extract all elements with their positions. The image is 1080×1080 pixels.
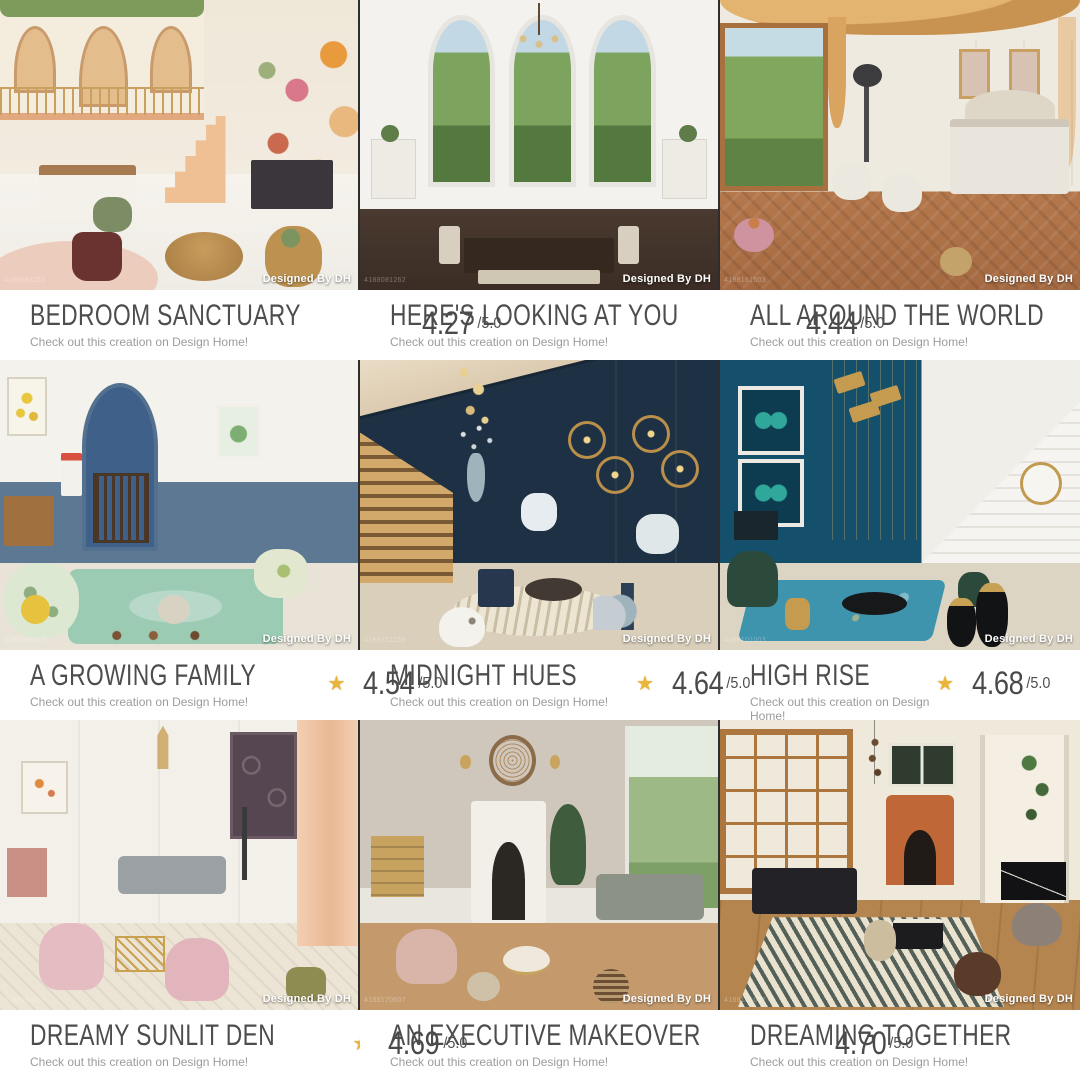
woven-ottoman <box>165 232 244 281</box>
design-card-an-executive-makeover[interactable]: 4188170607 Designed By DH AN EXECUTIVE M… <box>360 720 720 1080</box>
card-caption: DREAMING TOGETHER Check out this creatio… <box>720 1010 1080 1080</box>
design-title: ALL AROUND THE WORLD <box>750 299 1044 332</box>
photo-id-watermark: 4188101002 <box>724 997 766 1004</box>
star-icon: ★ <box>327 671 345 696</box>
design-photo: 4188085163 Designed By DH <box>0 360 360 650</box>
design-title: HIGH RISE <box>750 659 870 692</box>
white-armchair <box>636 514 679 555</box>
brown-leather-pouf <box>954 952 1001 996</box>
gold-coffee-table <box>115 936 166 972</box>
yellow-pillow <box>21 595 50 624</box>
designed-by-overlay: Designed By DH <box>623 273 711 285</box>
wall-sconce <box>550 755 561 770</box>
spotlight-lamp-head <box>853 64 882 87</box>
bed <box>950 119 1069 194</box>
spotlight-lamp-pole <box>864 75 869 162</box>
lattice-window <box>230 732 297 840</box>
design-card-dreaming-together[interactable]: 4188101002 Designed By DH DREAMING TOGET… <box>720 720 1080 1080</box>
green-armchair <box>727 551 777 606</box>
buddha-head-stool <box>864 920 896 961</box>
peach-drapes <box>297 720 358 946</box>
pink-cabinet <box>7 848 46 897</box>
design-title: A GROWING FAMILY <box>30 659 256 692</box>
card-caption: A GROWING FAMILY Check out this creation… <box>0 650 360 720</box>
design-subtitle: Check out this creation on Design Home! <box>750 695 936 723</box>
design-photo: 4188101003 Designed By DH <box>720 360 1080 650</box>
gray-beanbag <box>1012 903 1062 947</box>
design-photo: 4188151159 Designed By DH <box>360 360 720 650</box>
design-photo: 4188081151 Designed By DH <box>0 0 360 290</box>
black-gold-jar <box>947 598 976 647</box>
seed-pendant <box>864 720 886 784</box>
photo-id-watermark: 4188085163 <box>4 637 46 644</box>
designed-by-overlay: Designed By DH <box>263 633 351 645</box>
design-title: DREAMY SUNLIT DEN <box>30 1019 275 1052</box>
designed-by-overlay: Designed By DH <box>263 993 351 1005</box>
design-photo: 4188081262 Designed By DH <box>360 0 720 290</box>
floor-lamp <box>242 807 247 880</box>
wall-sconce <box>460 755 471 770</box>
designed-by-overlay: Designed By DH <box>985 633 1073 645</box>
design-photo: 4188966158 Designed By DH <box>0 720 360 1010</box>
pink-armchair <box>165 938 229 1002</box>
waterfall-art <box>889 743 956 787</box>
gold-candle-ring <box>568 421 606 459</box>
beige-pouf <box>467 972 499 1001</box>
side-cabinet <box>662 139 707 199</box>
rocking-chair <box>832 162 872 200</box>
white-dog <box>439 607 486 648</box>
card-caption: MIDNIGHT HUES Check out this creation on… <box>360 650 720 720</box>
photo-id-watermark: 4188966158 <box>4 997 46 1004</box>
wall-art <box>959 49 990 99</box>
rocking-chair <box>882 174 922 212</box>
gold-candle-ring <box>661 450 699 488</box>
white-armchair <box>521 493 557 531</box>
gray-sofa <box>118 856 225 894</box>
chandelier <box>514 3 564 49</box>
card-caption: BEDROOM SANCTUARY Check out this creatio… <box>0 290 360 360</box>
design-card-bedroom-sanctuary[interactable]: 4188081151 Designed By DH BEDROOM SANCTU… <box>0 0 360 360</box>
photo-id-watermark: 4188081151 <box>4 277 45 284</box>
side-cabinet <box>371 139 416 199</box>
star-icon: ★ <box>636 671 654 696</box>
photo-id-watermark: 4188101003 <box>724 637 766 644</box>
beige-pouf <box>158 595 190 624</box>
design-card-a-growing-family[interactable]: 4188085163 Designed By DH A GROWING FAMI… <box>0 360 360 720</box>
photo-id-watermark: 4188151159 <box>364 637 405 644</box>
card-caption: HIGH RISE Check out this creation on Des… <box>720 650 1080 720</box>
rating-max: /5.0 <box>727 675 751 693</box>
photo-id-watermark: 4188170607 <box>364 997 406 1004</box>
gold-candle-ring <box>596 456 634 494</box>
gold-wall-clock <box>1020 462 1062 506</box>
arched-garden-window <box>589 15 656 187</box>
dining-chair <box>439 226 460 264</box>
green-art <box>216 404 261 459</box>
designed-by-overlay: Designed By DH <box>985 273 1073 285</box>
design-card-heres-looking-at-you[interactable]: 4188081262 Designed By DH HERE'S LOOKING… <box>360 0 720 360</box>
pink-armchair <box>39 923 103 990</box>
rating-max: /5.0 <box>1027 675 1051 693</box>
design-photo: 4188161503 Designed By DH <box>720 0 1080 290</box>
green-pouf <box>93 197 132 232</box>
designed-by-overlay: Designed By DH <box>985 993 1073 1005</box>
daffodil-art <box>7 377 47 436</box>
blush-armchair <box>396 929 457 984</box>
rating-score: 4.64 <box>672 665 723 702</box>
poppy-art <box>21 761 68 814</box>
tall-plant <box>550 804 586 885</box>
white-staircase <box>922 372 1080 563</box>
arched-garden-window <box>428 15 495 187</box>
vine-garland <box>0 0 204 17</box>
photo-id-watermark: 4188161503 <box>724 277 766 284</box>
fireplace-opening <box>904 830 936 885</box>
design-photo: 4188101002 Designed By DH <box>720 720 1080 1010</box>
fireplace-opening <box>492 842 524 920</box>
lit-wood-stairs <box>360 433 453 584</box>
vase-group <box>593 583 640 629</box>
star-icon: ★ <box>936 671 954 696</box>
card-caption: ALL AROUND THE WORLD Check out this crea… <box>720 290 1080 360</box>
gold-dresser <box>371 836 425 897</box>
potted-plant <box>679 125 697 142</box>
dining-table <box>464 238 614 273</box>
designed-by-overlay: Designed By DH <box>623 633 711 645</box>
dark-console <box>734 511 777 540</box>
pink-pouf-with-cat <box>734 218 774 253</box>
black-coffee-table <box>893 919 943 949</box>
hanging-plants <box>1012 749 1055 827</box>
floor-vase <box>467 453 485 502</box>
bench <box>478 270 600 285</box>
gold-stool <box>785 598 810 630</box>
staircase <box>165 116 226 203</box>
photo-id-watermark: 4188081262 <box>364 277 406 284</box>
design-subtitle: Check out this creation on Design Home! <box>30 695 327 709</box>
design-photo: 4188170607 Designed By DH <box>360 720 720 1010</box>
rating-score: 4.68 <box>972 665 1023 702</box>
design-card-midnight-hues[interactable]: 4188151159 Designed By DH MIDNIGHT HUES … <box>360 360 720 720</box>
round-coffee-table <box>503 946 550 975</box>
drape-tail <box>828 17 846 127</box>
design-title: HERE'S LOOKING AT YOU <box>390 299 679 332</box>
black-branch-console <box>1001 862 1066 900</box>
design-subtitle: Check out this creation on Design Home! <box>30 1055 352 1069</box>
wicker-wall-clock <box>489 735 536 787</box>
tulip-planter <box>61 453 82 497</box>
card-caption: HERE'S LOOKING AT YOU Check out this cre… <box>360 290 720 360</box>
gold-candle-ring <box>632 415 670 453</box>
tan-pouf <box>940 247 972 276</box>
designed-by-overlay: Designed By DH <box>263 273 351 285</box>
design-title: DREAMING TOGETHER <box>750 1019 1012 1052</box>
black-sofa <box>752 868 856 914</box>
design-title: BEDROOM SANCTUARY <box>30 299 301 332</box>
card-caption: DREAMY SUNLIT DEN Check out this creatio… <box>0 1010 360 1080</box>
design-card-high-rise[interactable]: 4188101003 Designed By DH HIGH RISE Chec… <box>720 360 1080 720</box>
design-subtitle: Check out this creation on Design Home! <box>390 695 636 709</box>
designed-by-overlay: Designed By DH <box>623 993 711 1005</box>
garden-window <box>720 23 828 191</box>
floral-armchair <box>254 549 308 598</box>
round-coffee-table <box>525 578 582 601</box>
sage-sofa <box>596 874 703 920</box>
butterfly-frame <box>738 386 804 455</box>
card-caption: AN EXECUTIVE MAKEOVER Check out this cre… <box>360 1010 720 1080</box>
design-title: AN EXECUTIVE MAKEOVER <box>390 1019 701 1052</box>
rating-block: ★ 4.68 /5.0 <box>936 665 1052 702</box>
design-subtitle: Check out this creation on Design Home! <box>750 1055 1080 1069</box>
design-card-dreamy-sunlit-den[interactable]: 4188966158 Designed By DH DREAMY SUNLIT … <box>0 720 360 1080</box>
design-grid: 4188081151 Designed By DH BEDROOM SANCTU… <box>0 0 1080 1080</box>
dresser <box>251 160 333 209</box>
design-title: MIDNIGHT HUES <box>390 659 577 692</box>
design-subtitle: Check out this creation on Design Home! <box>30 335 386 349</box>
crib <box>93 473 149 543</box>
burgundy-pouf <box>72 232 122 281</box>
balcony-railing <box>0 87 204 115</box>
navy-cube-ottoman <box>478 569 514 607</box>
design-card-all-around-the-world[interactable]: 4188161503 Designed By DH ALL AROUND THE… <box>720 0 1080 360</box>
design-subtitle: Check out this creation on Design Home! <box>750 335 1080 349</box>
toy-animals <box>107 627 229 644</box>
dining-chair <box>618 226 639 264</box>
wood-dresser <box>4 496 54 545</box>
